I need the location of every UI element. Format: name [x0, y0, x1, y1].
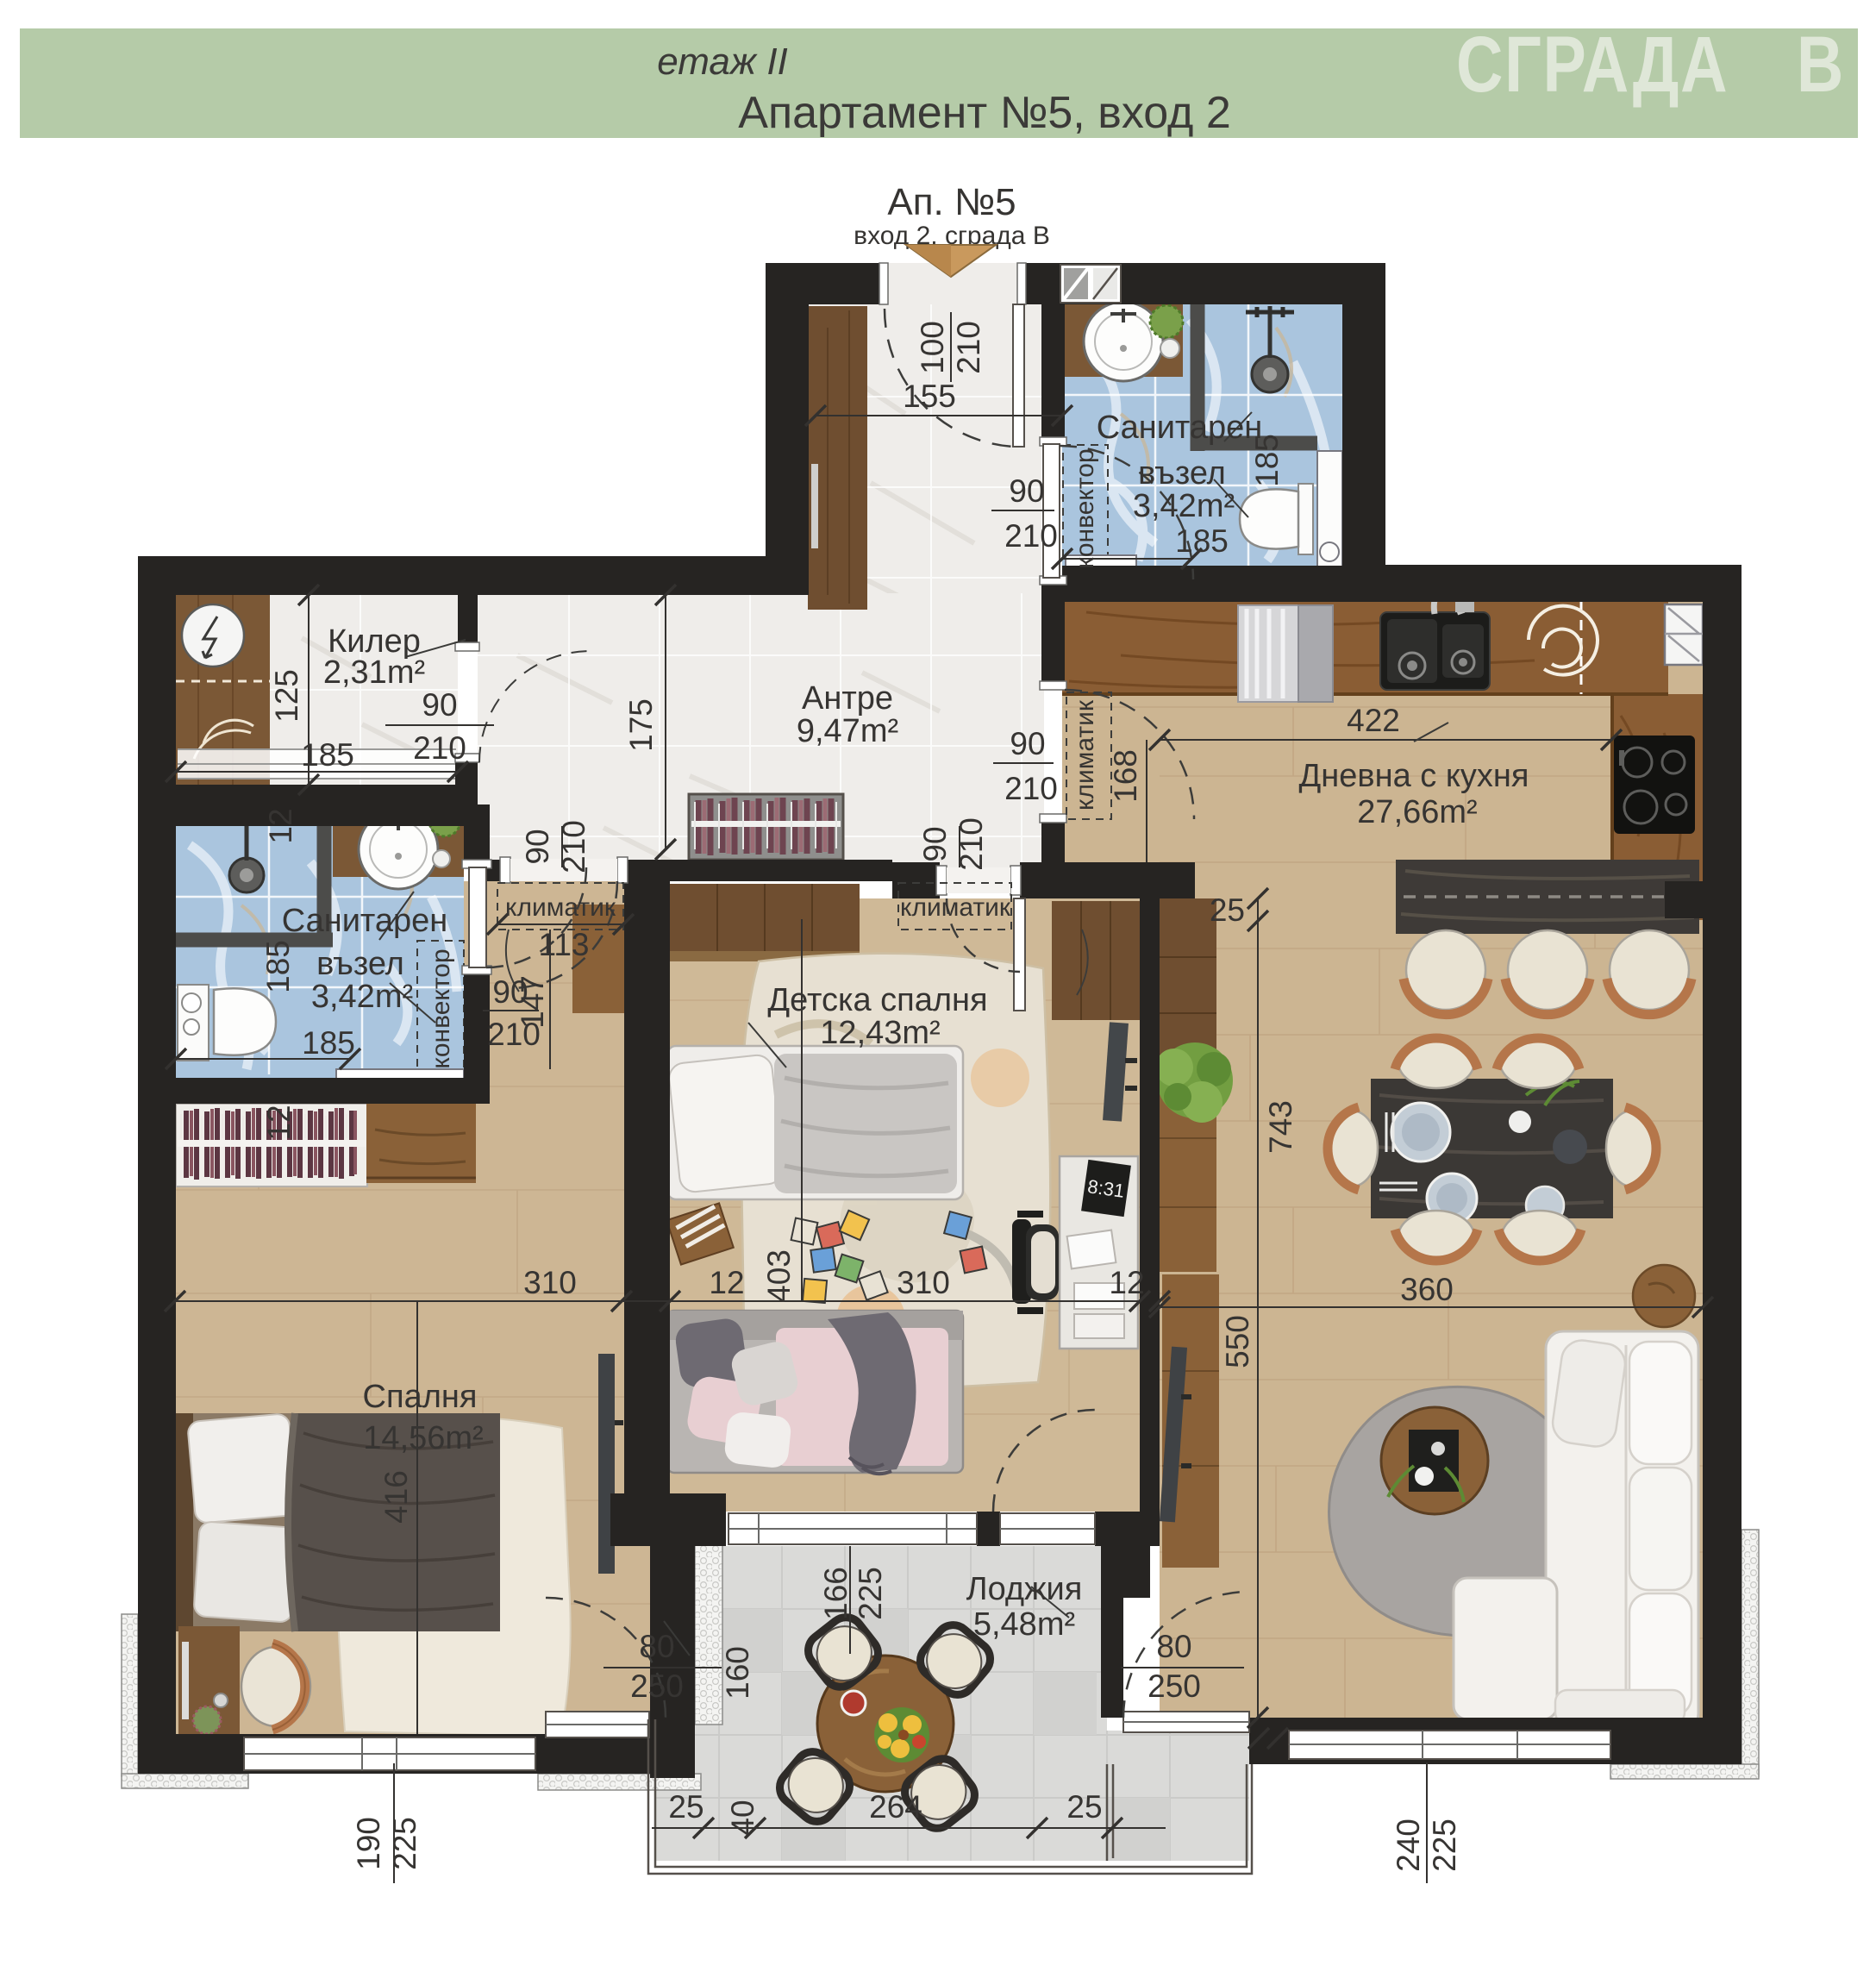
svg-text:743: 743	[1263, 1100, 1298, 1154]
svg-text:90: 90	[1010, 726, 1045, 761]
svg-text:185: 185	[302, 1025, 355, 1061]
svg-text:климатик: климатик	[1071, 699, 1099, 811]
svg-text:210: 210	[951, 321, 986, 374]
svg-text:210: 210	[1004, 518, 1058, 554]
svg-text:Санитарен: Санитарен	[1097, 410, 1263, 446]
svg-text:210: 210	[413, 730, 466, 766]
svg-text:403: 403	[761, 1249, 797, 1303]
svg-text:Детска спалня: Детска спалня	[767, 982, 987, 1018]
svg-text:264: 264	[869, 1789, 922, 1825]
svg-text:90: 90	[1009, 473, 1044, 509]
svg-text:416: 416	[378, 1470, 414, 1524]
svg-text:422: 422	[1347, 703, 1400, 738]
svg-text:12: 12	[263, 808, 298, 843]
svg-text:168: 168	[1108, 749, 1143, 803]
svg-text:185: 185	[260, 940, 296, 993]
svg-text:155: 155	[903, 379, 956, 414]
svg-text:90: 90	[422, 687, 457, 723]
svg-text:100: 100	[915, 321, 950, 374]
svg-text:Апартамент №5, вход 2: Апартамент №5, вход 2	[738, 88, 1230, 138]
svg-text:Дневна с кухня: Дневна с кухня	[1299, 758, 1529, 794]
svg-text:25: 25	[1066, 1789, 1102, 1825]
svg-text:климатик: климатик	[505, 893, 616, 922]
svg-text:СГРАДА В: СГРАДА В	[1456, 20, 1845, 109]
svg-text:3,42m²: 3,42m²	[1133, 488, 1235, 524]
svg-text:5,48m²: 5,48m²	[973, 1606, 1075, 1643]
svg-text:80: 80	[1156, 1629, 1191, 1664]
svg-text:225: 225	[387, 1817, 422, 1870]
svg-text:12,43m²: 12,43m²	[820, 1015, 940, 1051]
svg-text:възел: възел	[316, 946, 404, 982]
svg-text:250: 250	[630, 1668, 684, 1704]
svg-text:125: 125	[269, 669, 304, 723]
svg-text:225: 225	[853, 1567, 888, 1620]
svg-text:240: 240	[1391, 1819, 1426, 1872]
svg-text:185: 185	[301, 737, 354, 773]
svg-text:160: 160	[720, 1646, 755, 1700]
svg-text:2,31m²: 2,31m²	[323, 654, 425, 691]
svg-text:360: 360	[1400, 1272, 1454, 1307]
svg-text:185: 185	[1249, 434, 1285, 487]
svg-text:190: 190	[351, 1817, 386, 1870]
svg-text:Спалня: Спалня	[363, 1379, 478, 1415]
svg-text:25: 25	[1210, 892, 1245, 928]
svg-text:25: 25	[668, 1789, 703, 1825]
svg-text:40: 40	[725, 1800, 760, 1835]
svg-text:210: 210	[954, 817, 989, 871]
svg-text:Санитарен: Санитарен	[282, 903, 448, 939]
svg-text:3,42m²: 3,42m²	[311, 979, 413, 1015]
svg-text:90: 90	[917, 826, 953, 861]
svg-text:250: 250	[1147, 1668, 1201, 1704]
svg-text:14,56m²: 14,56m²	[363, 1420, 483, 1456]
svg-text:310: 310	[523, 1265, 577, 1300]
svg-text:9,47m²: 9,47m²	[797, 713, 898, 749]
svg-text:конвектор: конвектор	[427, 948, 455, 1068]
svg-text:310: 310	[897, 1265, 950, 1300]
svg-text:175: 175	[623, 698, 659, 752]
svg-text:възел: възел	[1138, 455, 1226, 491]
svg-text:80: 80	[639, 1629, 674, 1664]
svg-text:етаж II: етаж II	[657, 41, 788, 83]
svg-text:конвектор: конвектор	[1071, 448, 1099, 568]
svg-text:Лоджия: Лоджия	[966, 1571, 1083, 1607]
svg-text:166: 166	[818, 1567, 854, 1620]
svg-text:210: 210	[556, 820, 591, 873]
svg-text:185: 185	[1175, 523, 1229, 559]
svg-text:27,66m²: 27,66m²	[1357, 794, 1477, 830]
svg-text:550: 550	[1220, 1315, 1255, 1368]
svg-text:12: 12	[261, 1105, 297, 1140]
svg-text:12: 12	[709, 1265, 744, 1300]
svg-text:90: 90	[520, 829, 555, 864]
svg-text:225: 225	[1427, 1819, 1462, 1872]
svg-text:113: 113	[539, 927, 590, 962]
svg-text:12: 12	[1109, 1265, 1144, 1300]
svg-text:климатик: климатик	[900, 893, 1011, 922]
svg-text:Ап. №5: Ап. №5	[887, 181, 1016, 223]
svg-text:Антре: Антре	[802, 680, 893, 717]
svg-text:210: 210	[1004, 771, 1058, 806]
svg-text:147: 147	[515, 975, 550, 1029]
